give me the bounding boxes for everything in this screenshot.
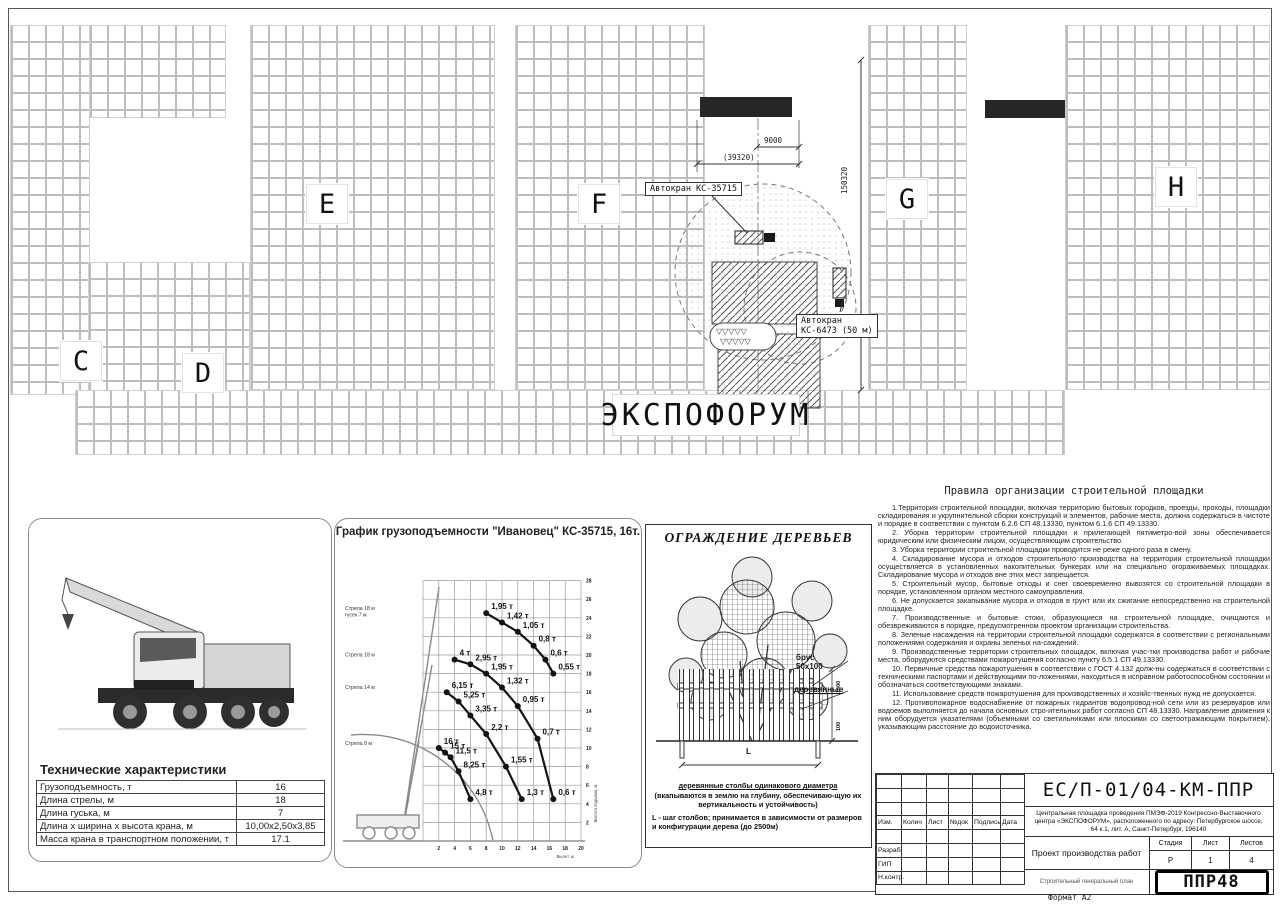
svg-text:6: 6 bbox=[586, 783, 589, 789]
sheets-value: 4 bbox=[1230, 851, 1273, 870]
svg-text:8: 8 bbox=[485, 846, 488, 852]
svg-text:Стрела 14 м: Стрела 14 м bbox=[345, 685, 375, 691]
specs-row: Длина гуська, м 7 bbox=[37, 807, 325, 820]
crane2-callout-line1: Автокран bbox=[801, 316, 873, 326]
crane-elevation-sketch bbox=[343, 587, 585, 841]
svg-text:Стрела 18 м: Стрела 18 м bbox=[345, 606, 375, 612]
rule-item: 11. Использование средств пожаротушения … bbox=[878, 690, 1270, 698]
titleblock-header-row: Изм.Колич Лист№док ПодписьДата bbox=[877, 816, 1025, 830]
spec-label: Длина стрелы, м bbox=[37, 794, 237, 807]
specs-row: Длина х ширина х высота крана, м 10,00х2… bbox=[37, 820, 325, 833]
rules-title: Правила организации строительной площадк… bbox=[878, 486, 1270, 498]
sheet-title: Строительный генеральный план bbox=[1024, 870, 1150, 894]
building-letter: C bbox=[73, 346, 89, 377]
svg-text:Вылет, м: Вылет, м bbox=[557, 854, 574, 859]
tree-fence-panel: ОГРАЖДЕНИЕ ДЕРЕВЬЕВ bbox=[645, 524, 872, 848]
specs-row: Грузоподъемность, т 16 bbox=[37, 781, 325, 794]
expoforum-label: ЭКСПОФОРУМ bbox=[612, 394, 800, 436]
svg-text:2,2 т: 2,2 т bbox=[491, 723, 508, 732]
load-capacity-chart: 2468101214161820246810121416182022242628… bbox=[335, 545, 639, 863]
svg-text:1,95 т: 1,95 т bbox=[491, 602, 513, 611]
building-label-f: F bbox=[578, 184, 620, 224]
dim-9000: 9000 bbox=[763, 136, 783, 145]
crane-hook-block bbox=[62, 614, 74, 630]
spec-value: 18 bbox=[237, 794, 325, 807]
svg-text:Высота подъема, м: Высота подъема, м bbox=[593, 785, 598, 823]
svg-text:2: 2 bbox=[437, 846, 440, 852]
spec-value: 16 bbox=[237, 781, 325, 794]
shrub-symbols-row2: ▽▽▽▽▽ bbox=[720, 337, 752, 346]
spec-label: Длина гуська, м bbox=[37, 807, 237, 820]
svg-text:8: 8 bbox=[586, 765, 589, 771]
crane2-callout: Автокран КС-6473 (50 м) bbox=[796, 314, 878, 338]
svg-text:4: 4 bbox=[453, 846, 456, 852]
tree-note-depth: (вкапываются в землю на глубину, обеспеч… bbox=[654, 791, 862, 809]
bar-label-line2: 50х100 bbox=[796, 662, 823, 671]
titleblock-left-table: Изм.Колич Лист№док ПодписьДата Разраб. Г… bbox=[876, 774, 1025, 885]
crane-symbol-ks6473 bbox=[833, 268, 846, 298]
sign-row-razrab: Разраб. bbox=[877, 843, 1025, 857]
svg-text:0,6 т: 0,6 т bbox=[558, 788, 575, 797]
format-label: Формат А2 bbox=[1048, 893, 1091, 902]
doc-title: Проект производства работ bbox=[1024, 837, 1150, 870]
rule-item: 6. Не допускается закапывание мусора и о… bbox=[878, 597, 1270, 613]
svg-text:4,8 т: 4,8 т bbox=[475, 788, 492, 797]
building-label-h: H bbox=[1155, 167, 1197, 207]
rule-item: 9. Производственные территории строитель… bbox=[878, 648, 1270, 664]
svg-text:1,55 т: 1,55 т bbox=[511, 756, 533, 765]
svg-text:6,15 т: 6,15 т bbox=[452, 681, 474, 690]
sheets-header: Листов bbox=[1230, 837, 1273, 851]
building-label-c: C bbox=[60, 341, 102, 381]
specs-table: Грузоподъемность, т 16 Длина стрелы, м 1… bbox=[36, 780, 325, 846]
svg-text:16: 16 bbox=[547, 846, 553, 852]
svg-text:20: 20 bbox=[578, 846, 584, 852]
fence-post-right bbox=[816, 741, 820, 758]
svg-text:2: 2 bbox=[586, 820, 589, 826]
svg-text:14: 14 bbox=[586, 709, 592, 715]
svg-text:10: 10 bbox=[499, 846, 505, 852]
svg-text:10: 10 bbox=[586, 746, 592, 752]
spec-label: Грузоподъемность, т bbox=[37, 781, 237, 794]
crane-windshield bbox=[140, 638, 196, 662]
svg-text:12: 12 bbox=[586, 727, 592, 733]
rule-item: 4. Складирование мусора и отходов строит… bbox=[878, 555, 1270, 579]
svg-text:1,3 т: 1,3 т bbox=[527, 788, 544, 797]
load-chart-panel: График грузоподъемности "Ивановец" КС-35… bbox=[334, 518, 642, 868]
tree-fence-drawing bbox=[652, 549, 864, 777]
fence-post-left bbox=[680, 741, 684, 758]
svg-text:11,5 т: 11,5 т bbox=[456, 746, 477, 755]
svg-text:0,95 т: 0,95 т bbox=[523, 695, 545, 704]
stage-value: Р bbox=[1150, 851, 1192, 870]
rule-item: 10. Первичные средства пожаротушения в с… bbox=[878, 665, 1270, 689]
title-block: Изм.Колич Лист№док ПодписьДата Разраб. Г… bbox=[875, 773, 1274, 895]
svg-text:16: 16 bbox=[586, 690, 592, 696]
bar-label-line1: брус bbox=[796, 653, 823, 662]
sheet-header: Лист bbox=[1192, 837, 1230, 851]
bar-label: брус 50х100 bbox=[796, 653, 823, 671]
spec-value: 17.1 bbox=[237, 833, 325, 846]
svg-text:28: 28 bbox=[586, 579, 592, 585]
sign-row-gip: ГИП bbox=[877, 857, 1025, 871]
crane-cab-1 bbox=[764, 233, 775, 242]
dim-150320: 150320 bbox=[840, 166, 849, 195]
crane1-callout: Автокран КС-35715 bbox=[645, 182, 742, 196]
svg-text:1,05 т: 1,05 т bbox=[523, 621, 545, 630]
dim-39320: (39320) bbox=[722, 153, 756, 162]
logo-cell: ППР48 bbox=[1150, 870, 1273, 894]
drawing-sheet: ▽▽▽▽▽ ▽▽▽▽▽ C D E F G H Автокран КС-3571… bbox=[0, 0, 1280, 904]
sign-row-nkontr: Н.контр. bbox=[877, 871, 1025, 885]
svg-text:0,7 т: 0,7 т bbox=[543, 728, 560, 737]
svg-text:24: 24 bbox=[586, 616, 592, 622]
crane2-callout-line2: КС-6473 (50 м) bbox=[801, 326, 873, 336]
crane-photo bbox=[38, 540, 320, 750]
rule-item: 2. Уборка территории строительной площад… bbox=[878, 529, 1270, 545]
tree-panel-title: ОГРАЖДЕНИЕ ДЕРЕВЬЕВ bbox=[646, 530, 871, 546]
rules-list: 1.Территория строительной площадки, вклю… bbox=[878, 504, 1270, 731]
svg-text:1,32 т: 1,32 т bbox=[507, 677, 529, 686]
specs-row: Масса крана в транспортном положении, т … bbox=[37, 833, 325, 846]
svg-text:12: 12 bbox=[515, 846, 521, 852]
rule-item: 12. Противопожарное водоснабжение от пож… bbox=[878, 699, 1270, 731]
svg-text:0,55 т: 0,55 т bbox=[558, 663, 580, 672]
svg-text:14: 14 bbox=[531, 846, 537, 852]
svg-text:гусек 7 м: гусек 7 м bbox=[345, 613, 367, 619]
spec-value: 7 bbox=[237, 807, 325, 820]
rule-item: 1.Территория строительной площадки, вклю… bbox=[878, 504, 1270, 528]
svg-text:22: 22 bbox=[586, 634, 592, 640]
building-letter: F bbox=[591, 189, 607, 220]
rule-item: 5. Строительный мусор, бытовые отходы и … bbox=[878, 580, 1270, 596]
svg-text:Стрела 18 м: Стрела 18 м bbox=[345, 653, 375, 659]
spec-value: 10,00х2,50х3,85 bbox=[237, 820, 325, 833]
svg-text:18: 18 bbox=[586, 672, 592, 678]
rule-item: 8. Зеленые насаждения на территории стро… bbox=[878, 631, 1270, 647]
dim-L-label: L bbox=[746, 747, 751, 756]
fence-slats bbox=[678, 669, 822, 741]
crane-symbol-ks35715 bbox=[735, 231, 763, 244]
specs-row: Длина стрелы, м 18 bbox=[37, 794, 325, 807]
ppr48-logo: ППР48 bbox=[1155, 870, 1269, 895]
stage-header: Стадия bbox=[1150, 837, 1192, 851]
svg-text:1,95 т: 1,95 т bbox=[491, 663, 513, 672]
building-letter: G bbox=[899, 184, 915, 215]
svg-text:Стрела 8 м: Стрела 8 м bbox=[345, 741, 372, 747]
dim-100: 100 bbox=[836, 722, 842, 731]
sheet-value: 1 bbox=[1192, 851, 1230, 870]
svg-text:26: 26 bbox=[586, 597, 592, 603]
building-letter: H bbox=[1168, 172, 1184, 203]
building-letter: E bbox=[319, 189, 335, 220]
building-letter: D bbox=[195, 358, 211, 389]
svg-text:3,35 т: 3,35 т bbox=[475, 704, 497, 713]
svg-text:18: 18 bbox=[562, 846, 568, 852]
svg-text:6: 6 bbox=[469, 846, 472, 852]
spec-label: Масса крана в транспортном положении, т bbox=[37, 833, 237, 846]
svg-text:0,6 т: 0,6 т bbox=[550, 649, 567, 658]
crane-bumper bbox=[134, 680, 194, 690]
svg-text:2,95 т: 2,95 т bbox=[475, 653, 497, 662]
svg-text:8,25 т: 8,25 т bbox=[464, 760, 486, 769]
svg-text:4: 4 bbox=[586, 802, 589, 808]
crane-superstructure bbox=[204, 644, 290, 690]
spec-label: Длина х ширина х высота крана, м bbox=[37, 820, 237, 833]
specs-title: Технические характеристики bbox=[40, 762, 226, 777]
dim-1500: 1500 bbox=[836, 681, 842, 693]
load-chart-title: График грузоподъемности "Ивановец" КС-35… bbox=[335, 526, 641, 538]
building-label-g: G bbox=[886, 179, 928, 219]
rule-item: 3. Уборка территории строительной площад… bbox=[878, 546, 1270, 554]
svg-text:5,25 т: 5,25 т bbox=[464, 691, 486, 700]
svg-text:4 т: 4 т bbox=[460, 649, 471, 658]
building-label-e: E bbox=[306, 184, 348, 224]
tree-note-step: L - шаг столбов; принимается в зависимос… bbox=[652, 813, 864, 831]
doc-number: ЕС/П-01/04-КМ-ППР bbox=[1024, 774, 1273, 807]
rule-item: 7. Производственные и бытовые стоки, обр… bbox=[878, 614, 1270, 630]
project-description: Центральная площадка проведения ПМЭФ-201… bbox=[1024, 807, 1273, 837]
building-label-d: D bbox=[182, 353, 224, 393]
svg-text:1,42 т: 1,42 т bbox=[507, 611, 529, 620]
svg-text:20: 20 bbox=[586, 653, 592, 659]
tree-note-posts: деревянные столбы одинакового диаметра bbox=[654, 781, 862, 790]
shrub-symbols-row1: ▽▽▽▽▽ bbox=[716, 327, 748, 336]
rules-block: Правила организации строительной площадк… bbox=[878, 486, 1270, 770]
svg-text:0,8 т: 0,8 т bbox=[539, 635, 556, 644]
